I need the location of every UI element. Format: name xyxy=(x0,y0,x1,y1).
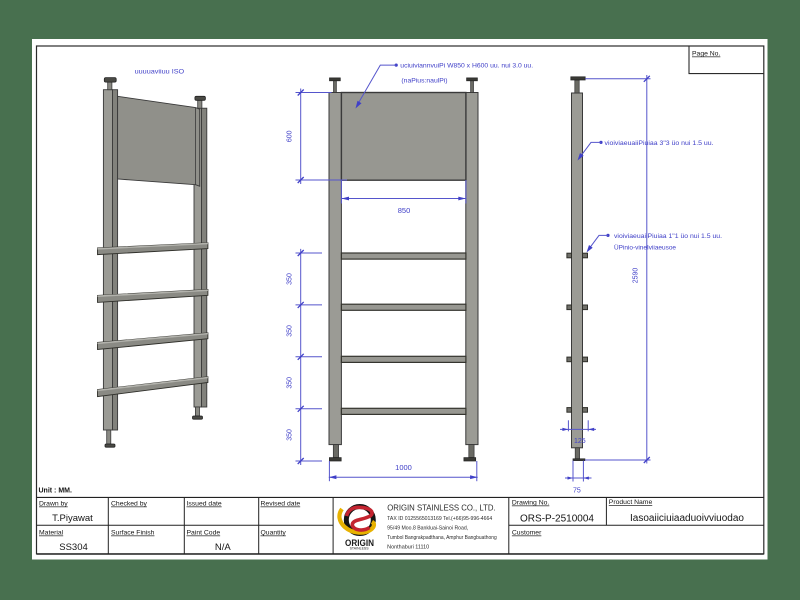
svg-text:uciuiviannvuiPi W850 x H600 uu: uciuiviannvuiPi W850 x H600 uu. nui 3.0 … xyxy=(400,63,533,70)
svg-text:Surface Finish: Surface Finish xyxy=(111,530,155,537)
svg-text:TAX ID 0125565013169 Tel.(+66: TAX ID 0125565013169 Tel.(+66)95-996-466… xyxy=(387,516,492,522)
svg-text:600: 600 xyxy=(287,130,294,142)
svg-text:Drawn by: Drawn by xyxy=(39,501,68,508)
svg-text:Material: Material xyxy=(39,530,64,537)
svg-text:1000: 1000 xyxy=(395,463,412,472)
svg-text:850: 850 xyxy=(398,206,411,215)
svg-text:75: 75 xyxy=(573,488,581,495)
svg-text:ORIGIN STAINLESS CO., LTD.: ORIGIN STAINLESS CO., LTD. xyxy=(387,504,495,513)
svg-text:ÜPinio-vineIviiaeusoe: ÜPinio-vineIviiaeusoe xyxy=(614,244,677,251)
svg-text:Paint Code: Paint Code xyxy=(187,530,221,537)
svg-text:ORS-P-2510004: ORS-P-2510004 xyxy=(520,514,594,525)
svg-text:vioiviaeuaiiPiuiaa 1"1 üo nui: vioiviaeuaiiPiuiaa 1"1 üo nui 1.5 uu. xyxy=(614,233,722,240)
svg-text:T.Piyawat: T.Piyawat xyxy=(52,513,93,524)
svg-text:Unit : MM.: Unit : MM. xyxy=(39,488,72,495)
svg-text:350: 350 xyxy=(287,273,294,285)
svg-text:Customer: Customer xyxy=(512,530,542,537)
svg-text:(naPius:naulPi): (naPius:naulPi) xyxy=(401,77,447,84)
svg-text:Revised date: Revised date xyxy=(261,501,301,508)
svg-text:Quantity: Quantity xyxy=(261,530,287,537)
svg-text:Iasoaiiciuiaaduoivviuodao: Iasoaiiciuiaaduoivviuodao xyxy=(630,513,744,524)
svg-text:Checked by: Checked by xyxy=(111,501,147,508)
svg-text:125: 125 xyxy=(574,438,586,445)
svg-text:SS304: SS304 xyxy=(59,542,88,553)
svg-text:STAINLESS: STAINLESS xyxy=(350,547,370,551)
svg-text:N/A: N/A xyxy=(215,542,232,553)
svg-text:Page No.: Page No. xyxy=(692,51,720,58)
svg-text:vioiviaeuaiiPiuiaa 3"3 üo nui: vioiviaeuaiiPiuiaa 3"3 üo nui 1.5 uu. xyxy=(605,140,714,147)
svg-text:Tumbol Bangrakpadthana, Amphur: Tumbol Bangrakpadthana, Amphur Bangbuath… xyxy=(387,535,497,541)
svg-text:uuuuaviiuu ISO: uuuuaviiuu ISO xyxy=(135,69,185,76)
svg-text:350: 350 xyxy=(287,377,294,389)
svg-text:Issued date: Issued date xyxy=(187,501,222,508)
svg-text:350: 350 xyxy=(287,429,294,441)
svg-text:95/49 Moo.8 Bankluai-Sainoi Ro: 95/49 Moo.8 Bankluai-Sainoi Road, xyxy=(387,526,468,532)
svg-text:2590: 2590 xyxy=(633,268,640,284)
svg-text:Nonthaburi 11110: Nonthaburi 11110 xyxy=(387,544,429,550)
svg-text:350: 350 xyxy=(287,325,294,337)
svg-text:Drawing No.: Drawing No. xyxy=(512,500,550,507)
svg-text:Product Name: Product Name xyxy=(609,499,653,506)
